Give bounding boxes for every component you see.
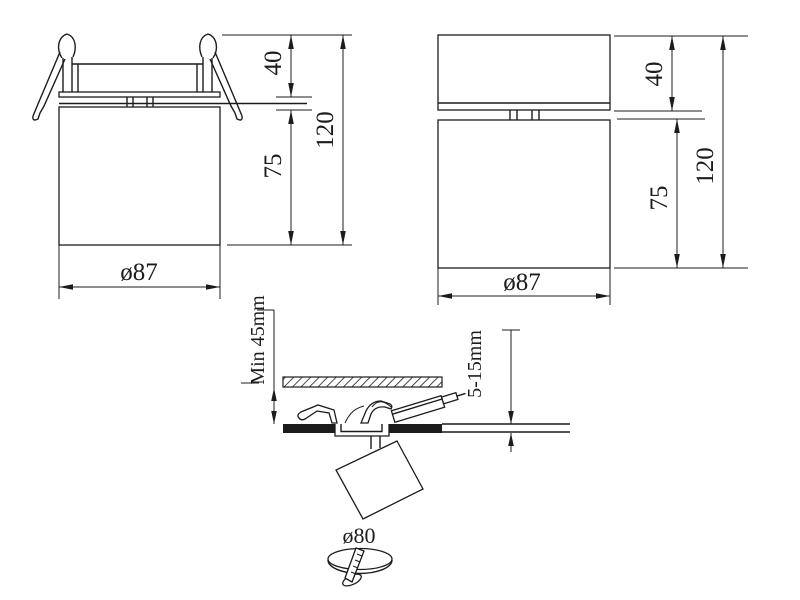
min-clearance-dimension: Min 45mm [241,295,277,424]
technical-drawing-page: ø87 40 75 120 [0,0,800,600]
recessed-diameter-label: ø87 [120,259,158,286]
recessed-side-view: ø87 40 75 120 [33,34,352,299]
recessed-height-dimensions: 40 75 120 [222,35,352,245]
dimension-drawing-canvas: ø87 40 75 120 [0,0,800,600]
recessed-top-height-label: 40 [260,51,287,76]
surface-diameter-label: ø87 [503,269,541,296]
surface-side-view: ø87 40 75 120 [438,35,748,305]
surface-total-height-label: 120 [692,147,719,185]
lamp-body [59,107,220,245]
neck-tabs [127,97,153,107]
recessed-body-height-label: 75 [260,154,287,179]
cutout-diameter-label: ø80 [343,523,376,548]
ceiling-section [283,424,570,433]
recessed-diameter-dimension: ø87 [59,245,220,299]
surface-diameter-dimension: ø87 [438,268,610,305]
lamp-housing [72,64,203,92]
surface-top-height-label: 40 [641,62,668,87]
ceiling-thickness-dimension: 5-15mm [464,330,520,452]
obstruction-hatch-bar [283,377,442,387]
driver-connector [391,389,467,423]
tilted-lamp-body [336,441,423,519]
trim-collar [335,424,389,449]
min-clearance-label: Min 45mm [247,295,269,385]
mounting-box [438,35,610,110]
ceiling-thickness-label: 5-15mm [464,330,486,398]
cutout-disc: ø80 [328,523,392,588]
trim-flange [59,92,220,97]
recessed-total-height-label: 120 [312,111,339,149]
installation-view: Min 45mm [241,295,570,588]
neck-tabs [510,110,539,120]
spring-clip-left-icon [298,405,337,423]
surface-body-height-label: 75 [646,186,673,211]
lamp-body [438,120,610,268]
spring-clip-right-icon [345,401,392,423]
surface-height-dimensions: 40 75 120 [614,36,748,268]
